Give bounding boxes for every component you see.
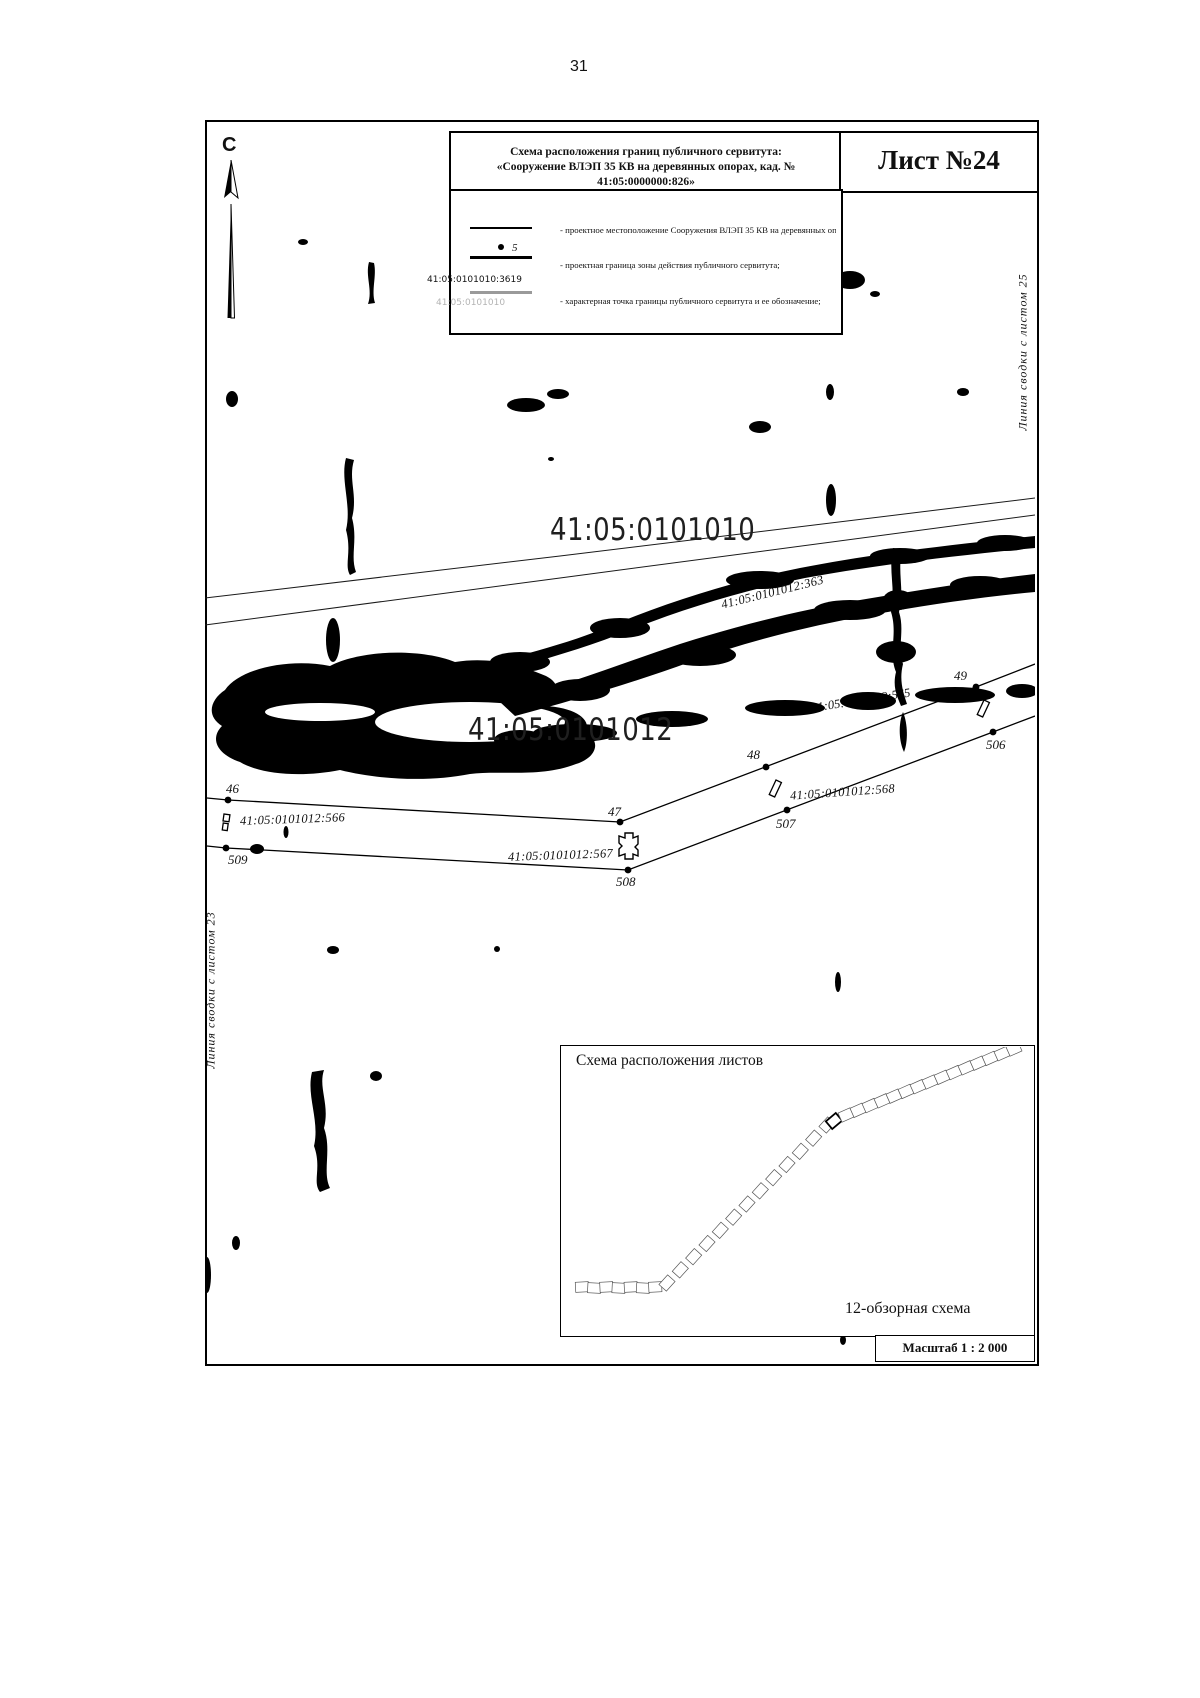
point-label-508: 508: [616, 874, 636, 890]
north-arrow-icon: [220, 160, 242, 320]
point-label-48: 48: [747, 747, 760, 763]
point-label-49: 49: [954, 668, 967, 684]
legend-items: - проектное местоположение Сооружения ВЛ…: [560, 202, 836, 328]
legend-quarter-number-ghost: 41:05:0101010: [436, 298, 505, 308]
document-page: 31 41:05:0101012:565: [0, 0, 1200, 1698]
point-label-506: 506: [986, 737, 1006, 753]
legend-parcel-number-sample: 41:05:0101010:3619: [427, 275, 522, 285]
legend-line-thick: [470, 256, 532, 259]
legend-point-symbol: 5: [498, 238, 518, 256]
sheet-number: Лист №24: [841, 145, 1037, 176]
legend-line-thin: [470, 227, 532, 229]
legend-item: - характерная точка границы публичного с…: [560, 296, 836, 308]
point-label-507: 507: [776, 816, 796, 832]
quarter-label-0101012: 41:05:0101012: [468, 712, 673, 748]
legend-point-label: 5: [512, 242, 518, 254]
legend-item: - проектное местоположение Сооружения ВЛ…: [560, 225, 836, 237]
scale-label: Масштаб 1 : 2 000: [876, 1340, 1034, 1356]
header-title-line2: «Сооружение ВЛЭП 35 КВ на деревянных опо…: [451, 160, 841, 190]
header-title-box: Схема расположения границ публичного сер…: [449, 131, 843, 193]
slanted-marker-1: [769, 780, 781, 797]
point-label-46: 46: [226, 781, 239, 797]
pole-marker: [222, 814, 230, 831]
page-number: 31: [570, 58, 588, 76]
sheet-number-box: Лист №24: [839, 131, 1039, 193]
point-dot-icon: [498, 244, 504, 250]
inset-caption: 12-обзорная схема: [845, 1300, 970, 1318]
scale-box: Масштаб 1 : 2 000: [875, 1335, 1035, 1362]
edge-note-left: Линия сводки с листом 23: [204, 911, 219, 1068]
legend-line-grey: [470, 291, 532, 294]
header-title-line1: Схема расположения границ публичного сер…: [451, 145, 841, 160]
legend-item: - проектная граница зоны действия публич…: [560, 260, 836, 272]
north-label: С: [222, 134, 236, 157]
point-label-47: 47: [608, 804, 621, 820]
inset-sheet-chain: [562, 1047, 1031, 1333]
quarter-label-0101010: 41:05:0101010: [550, 512, 755, 548]
slanted-marker-2: [977, 700, 989, 717]
point-label-509: 509: [228, 852, 248, 868]
edge-note-right: Линия сводки с листом 25: [1016, 273, 1031, 430]
cross-marker: [619, 833, 638, 859]
